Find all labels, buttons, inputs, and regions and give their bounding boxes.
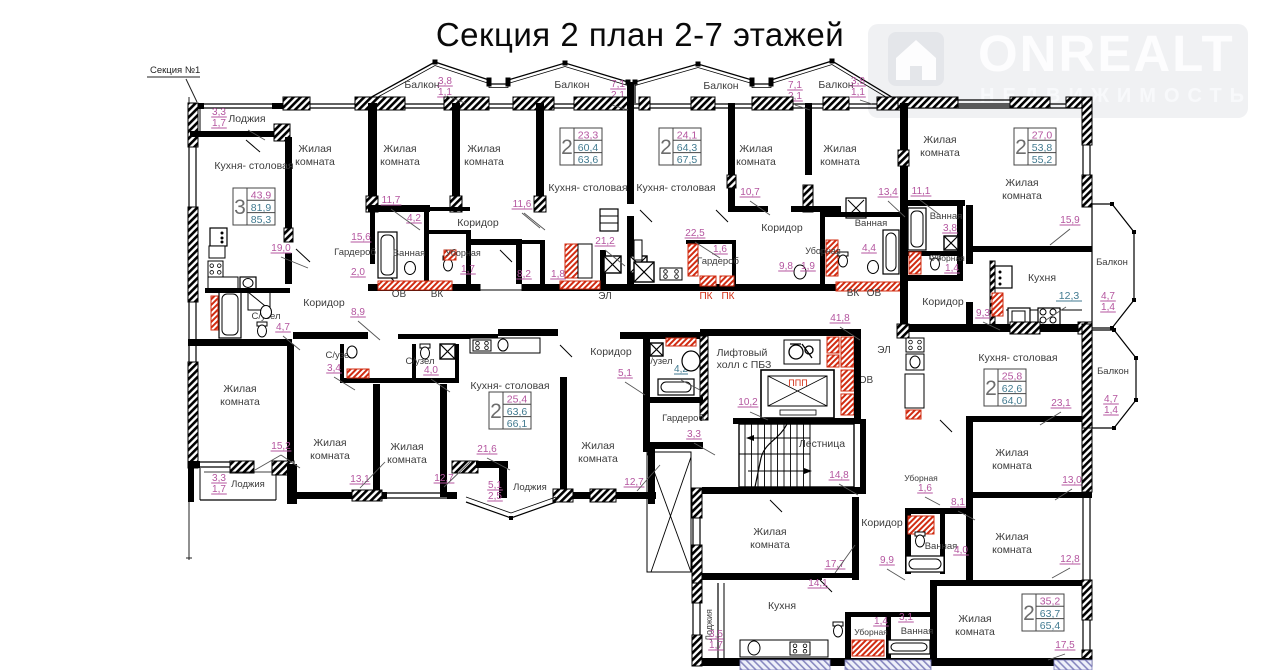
svg-text:Жилая: Жилая (923, 134, 956, 146)
svg-text:Кухня- столовая: Кухня- столовая (978, 352, 1057, 364)
svg-text:60,4: 60,4 (578, 142, 599, 154)
svg-text:Лоджия: Лоджия (228, 113, 265, 125)
svg-text:3,4: 3,4 (327, 363, 341, 374)
svg-text:63,6: 63,6 (507, 406, 528, 418)
svg-text:65,4: 65,4 (1040, 620, 1061, 632)
svg-text:2,5: 2,5 (488, 491, 502, 502)
svg-text:Лоджия: Лоджия (513, 482, 547, 493)
svg-text:Лоджия: Лоджия (231, 479, 265, 490)
svg-text:Жилая: Жилая (223, 383, 256, 395)
svg-text:Коридор: Коридор (922, 296, 964, 308)
svg-text:7,1: 7,1 (611, 79, 625, 90)
svg-text:Жилая: Жилая (823, 143, 856, 155)
svg-text:Жилая: Жилая (467, 143, 500, 155)
svg-text:комната: комната (1002, 190, 1042, 202)
svg-text:10,7: 10,7 (740, 187, 760, 198)
svg-text:ВК: ВК (431, 289, 444, 300)
svg-text:3,5: 3,5 (709, 629, 723, 640)
svg-text:35,2: 35,2 (1040, 596, 1061, 608)
svg-text:Ванная: Ванная (930, 211, 963, 222)
svg-text:10,2: 10,2 (738, 397, 758, 408)
svg-text:Жилая: Жилая (298, 143, 331, 155)
svg-text:9,3: 9,3 (976, 308, 990, 319)
svg-text:23,1: 23,1 (1051, 398, 1071, 409)
svg-text:Коридор: Коридор (590, 346, 632, 358)
svg-text:25,8: 25,8 (1002, 371, 1023, 383)
svg-text:Кухня- столовая: Кухня- столовая (470, 380, 549, 392)
svg-text:17,7: 17,7 (825, 559, 845, 570)
svg-text:ВК: ВК (847, 288, 860, 299)
svg-text:13,1: 13,1 (350, 474, 370, 485)
svg-text:41,8: 41,8 (830, 313, 850, 324)
svg-text:Коридор: Коридор (457, 217, 499, 229)
svg-text:64,0: 64,0 (1002, 395, 1023, 407)
svg-text:Балкон: Балкон (404, 79, 439, 91)
svg-text:Гардероб: Гардероб (697, 256, 739, 267)
svg-text:55,2: 55,2 (1032, 154, 1053, 166)
svg-text:8,9: 8,9 (351, 307, 365, 318)
svg-text:Жилая: Жилая (390, 441, 423, 453)
svg-text:11,1: 11,1 (912, 186, 931, 197)
svg-text:ПК: ПК (721, 291, 734, 302)
svg-text:ЭЛ: ЭЛ (877, 345, 890, 356)
svg-text:1,4: 1,4 (874, 616, 888, 627)
svg-text:12,3: 12,3 (1059, 290, 1080, 302)
svg-text:Кухня- столовая: Кухня- столовая (214, 160, 293, 172)
svg-text:66,1: 66,1 (507, 418, 528, 430)
svg-text:Балкон: Балкон (554, 79, 589, 91)
svg-text:2: 2 (985, 377, 997, 400)
svg-text:комната: комната (992, 544, 1032, 556)
svg-text:Жилая: Жилая (995, 447, 1028, 459)
svg-text:Жилая: Жилая (313, 437, 346, 449)
svg-text:15,6: 15,6 (351, 232, 371, 243)
svg-text:ОВ: ОВ (392, 289, 407, 300)
svg-text:Лифтовый: Лифтовый (717, 347, 768, 359)
svg-text:12,8: 12,8 (1060, 554, 1080, 565)
svg-text:комната: комната (387, 454, 427, 466)
svg-text:85,3: 85,3 (251, 214, 272, 226)
svg-text:67,5: 67,5 (677, 154, 698, 166)
svg-text:Жилая: Жилая (1005, 177, 1038, 189)
svg-text:27,0: 27,0 (1032, 130, 1053, 142)
svg-text:Уборная: Уборная (854, 627, 888, 637)
svg-text:4,4: 4,4 (862, 243, 876, 254)
svg-text:64,3: 64,3 (677, 142, 698, 154)
svg-text:Жилая: Жилая (753, 526, 786, 538)
svg-text:4,0: 4,0 (424, 365, 438, 376)
svg-text:комната: комната (220, 396, 260, 408)
svg-text:12,7: 12,7 (434, 473, 454, 484)
svg-text:24,1: 24,1 (677, 130, 698, 142)
svg-text:5,1: 5,1 (488, 480, 502, 491)
svg-text:Жилая: Жилая (739, 143, 772, 155)
svg-text:ЭЛ: ЭЛ (598, 291, 611, 302)
svg-text:Жилая: Жилая (958, 613, 991, 625)
svg-text:53,8: 53,8 (1032, 142, 1053, 154)
svg-text:2: 2 (561, 136, 573, 159)
svg-text:2: 2 (490, 400, 502, 423)
svg-text:Уборная: Уборная (805, 246, 841, 256)
svg-text:Балкон: Балкон (818, 79, 853, 91)
svg-text:1,8: 1,8 (551, 269, 565, 280)
svg-text:13,0: 13,0 (1062, 475, 1082, 486)
svg-text:Ванная: Ванная (855, 218, 888, 229)
svg-text:1,7: 1,7 (461, 264, 475, 275)
svg-text:Жилая: Жилая (581, 440, 614, 452)
svg-text:4,7: 4,7 (1104, 394, 1118, 405)
svg-text:5,1: 5,1 (618, 368, 632, 379)
svg-text:Балкон: Балкон (1096, 257, 1128, 268)
svg-text:4,7: 4,7 (1101, 291, 1115, 302)
svg-text:Ванная: Ванная (925, 541, 958, 552)
svg-text:комната: комната (295, 156, 335, 168)
svg-text:Лестница: Лестница (799, 438, 845, 450)
svg-text:комната: комната (380, 156, 420, 168)
svg-text:Уборная: Уборная (445, 248, 481, 258)
svg-text:Гардероб: Гардероб (662, 413, 704, 424)
svg-text:комната: комната (750, 539, 790, 551)
svg-text:Коридор: Коридор (861, 517, 903, 529)
svg-text:1,7: 1,7 (709, 640, 723, 651)
svg-text:комната: комната (920, 147, 960, 159)
svg-text:Ванная: Ванная (393, 248, 426, 259)
svg-text:81,9: 81,9 (251, 202, 272, 214)
svg-text:25,4: 25,4 (507, 394, 528, 406)
svg-text:Жилая: Жилая (383, 143, 416, 155)
svg-text:11,7: 11,7 (382, 195, 401, 206)
svg-text:1,4: 1,4 (1104, 405, 1118, 416)
svg-text:Балкон: Балкон (703, 80, 738, 92)
svg-text:2: 2 (1015, 136, 1027, 159)
svg-text:63,7: 63,7 (1040, 608, 1061, 620)
svg-text:комната: комната (955, 626, 995, 638)
svg-text:43,9: 43,9 (251, 190, 272, 202)
svg-text:22,5: 22,5 (685, 228, 705, 239)
svg-text:3,1: 3,1 (899, 612, 913, 623)
svg-text:ОВ: ОВ (867, 288, 882, 299)
svg-text:комната: комната (578, 453, 618, 465)
svg-text:комната: комната (820, 156, 860, 168)
svg-text:Гардероб: Гардероб (334, 247, 376, 258)
svg-text:1,6: 1,6 (918, 483, 932, 494)
svg-text:Жилая: Жилая (995, 531, 1028, 543)
svg-text:1,1: 1,1 (851, 87, 865, 98)
svg-text:9,8: 9,8 (779, 261, 793, 272)
svg-text:Уборная: Уборная (904, 473, 938, 483)
svg-text:комната: комната (992, 460, 1032, 472)
svg-text:17,5: 17,5 (1055, 640, 1075, 651)
svg-text:19,0: 19,0 (271, 243, 291, 254)
svg-text:8,1: 8,1 (951, 497, 965, 508)
svg-text:21,2: 21,2 (595, 236, 615, 247)
svg-text:Кухня: Кухня (1028, 272, 1056, 284)
svg-text:Кухня- столовая: Кухня- столовая (548, 182, 627, 194)
svg-text:Уборная: Уборная (931, 253, 965, 263)
svg-text:Кухня: Кухня (768, 600, 796, 612)
svg-text:1,6: 1,6 (713, 244, 727, 255)
svg-text:63,6: 63,6 (578, 154, 599, 166)
svg-text:62,6: 62,6 (1002, 383, 1023, 395)
svg-text:3,8: 3,8 (851, 76, 865, 87)
svg-text:7,1: 7,1 (788, 80, 802, 91)
svg-text:1,9: 1,9 (801, 261, 815, 272)
svg-text:15,2: 15,2 (271, 441, 291, 452)
svg-text:ПК: ПК (699, 291, 712, 302)
svg-text:15,9: 15,9 (1060, 215, 1080, 226)
svg-text:4,7: 4,7 (276, 322, 290, 333)
svg-text:23,3: 23,3 (578, 130, 599, 142)
svg-text:ППП: ППП (788, 378, 807, 388)
svg-text:Коридор: Коридор (303, 297, 345, 309)
svg-text:комната: комната (310, 450, 350, 462)
svg-text:14,1: 14,1 (808, 578, 828, 589)
svg-text:13,4: 13,4 (878, 187, 898, 198)
svg-text:1,4: 1,4 (1101, 302, 1115, 313)
svg-text:1,7: 1,7 (212, 118, 226, 129)
svg-text:2: 2 (1023, 602, 1035, 625)
svg-text:4,0: 4,0 (954, 545, 968, 556)
svg-text:Ванная: Ванная (901, 626, 934, 637)
svg-text:21,6: 21,6 (477, 444, 497, 455)
svg-text:3,8: 3,8 (943, 223, 957, 234)
svg-text:Коридор: Коридор (761, 222, 803, 234)
svg-text:14,8: 14,8 (829, 470, 849, 481)
svg-text:3,3: 3,3 (212, 473, 226, 484)
svg-text:2: 2 (660, 136, 672, 159)
svg-text:11,6: 11,6 (513, 199, 532, 210)
svg-text:1,7: 1,7 (212, 484, 226, 495)
svg-text:3,3: 3,3 (687, 429, 701, 440)
svg-text:Секция №1: Секция №1 (150, 65, 200, 76)
svg-text:комната: комната (736, 156, 776, 168)
svg-text:1,4: 1,4 (945, 263, 959, 274)
svg-text:Балкон: Балкон (1097, 366, 1129, 377)
svg-text:комната: комната (464, 156, 504, 168)
svg-text:3,3: 3,3 (212, 107, 226, 118)
svg-text:Кухня- столовая: Кухня- столовая (636, 182, 715, 194)
svg-text:9,9: 9,9 (880, 555, 894, 566)
svg-text:8,2: 8,2 (517, 269, 531, 280)
svg-text:3,8: 3,8 (438, 76, 452, 87)
svg-text:2,0: 2,0 (351, 267, 365, 278)
svg-text:1,1: 1,1 (438, 87, 452, 98)
svg-text:3: 3 (234, 196, 246, 219)
